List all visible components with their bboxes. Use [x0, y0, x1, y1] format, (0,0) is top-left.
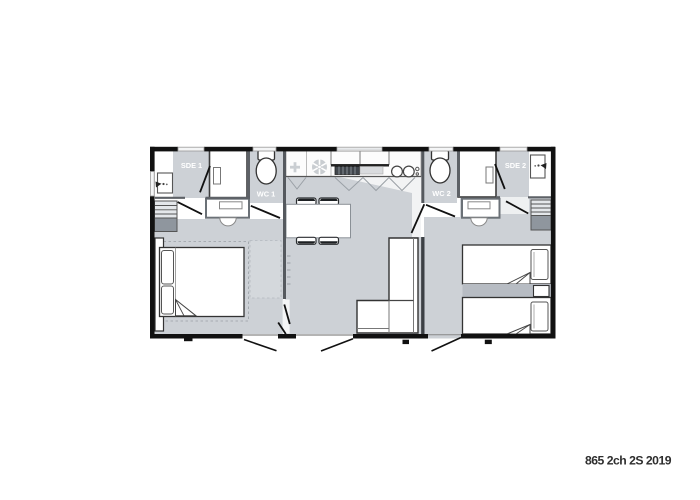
svg-text:WC 2: WC 2 — [432, 189, 450, 198]
svg-text:865 2ch 2S 2019: 865 2ch 2S 2019 — [585, 454, 672, 468]
svg-text:WC 1: WC 1 — [257, 190, 275, 199]
svg-text:SDE 1: SDE 1 — [181, 161, 202, 170]
svg-text:SDE 2: SDE 2 — [505, 161, 526, 170]
